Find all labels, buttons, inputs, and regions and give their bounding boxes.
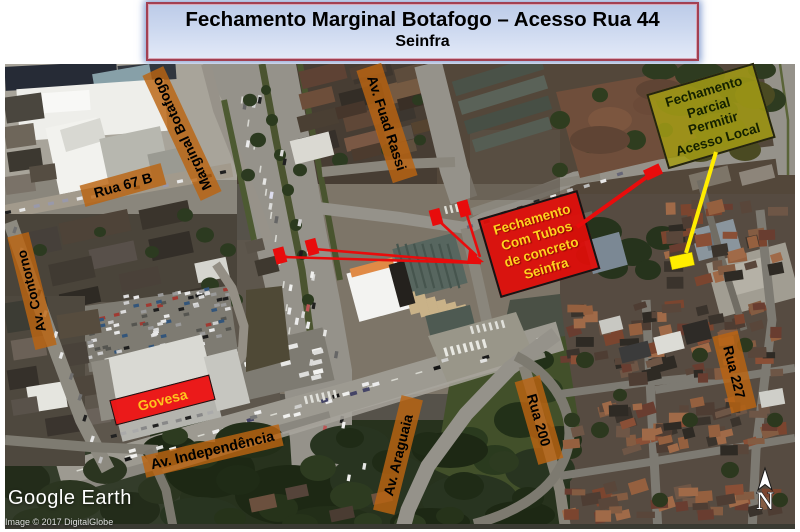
svg-text:N: N [756, 488, 774, 515]
